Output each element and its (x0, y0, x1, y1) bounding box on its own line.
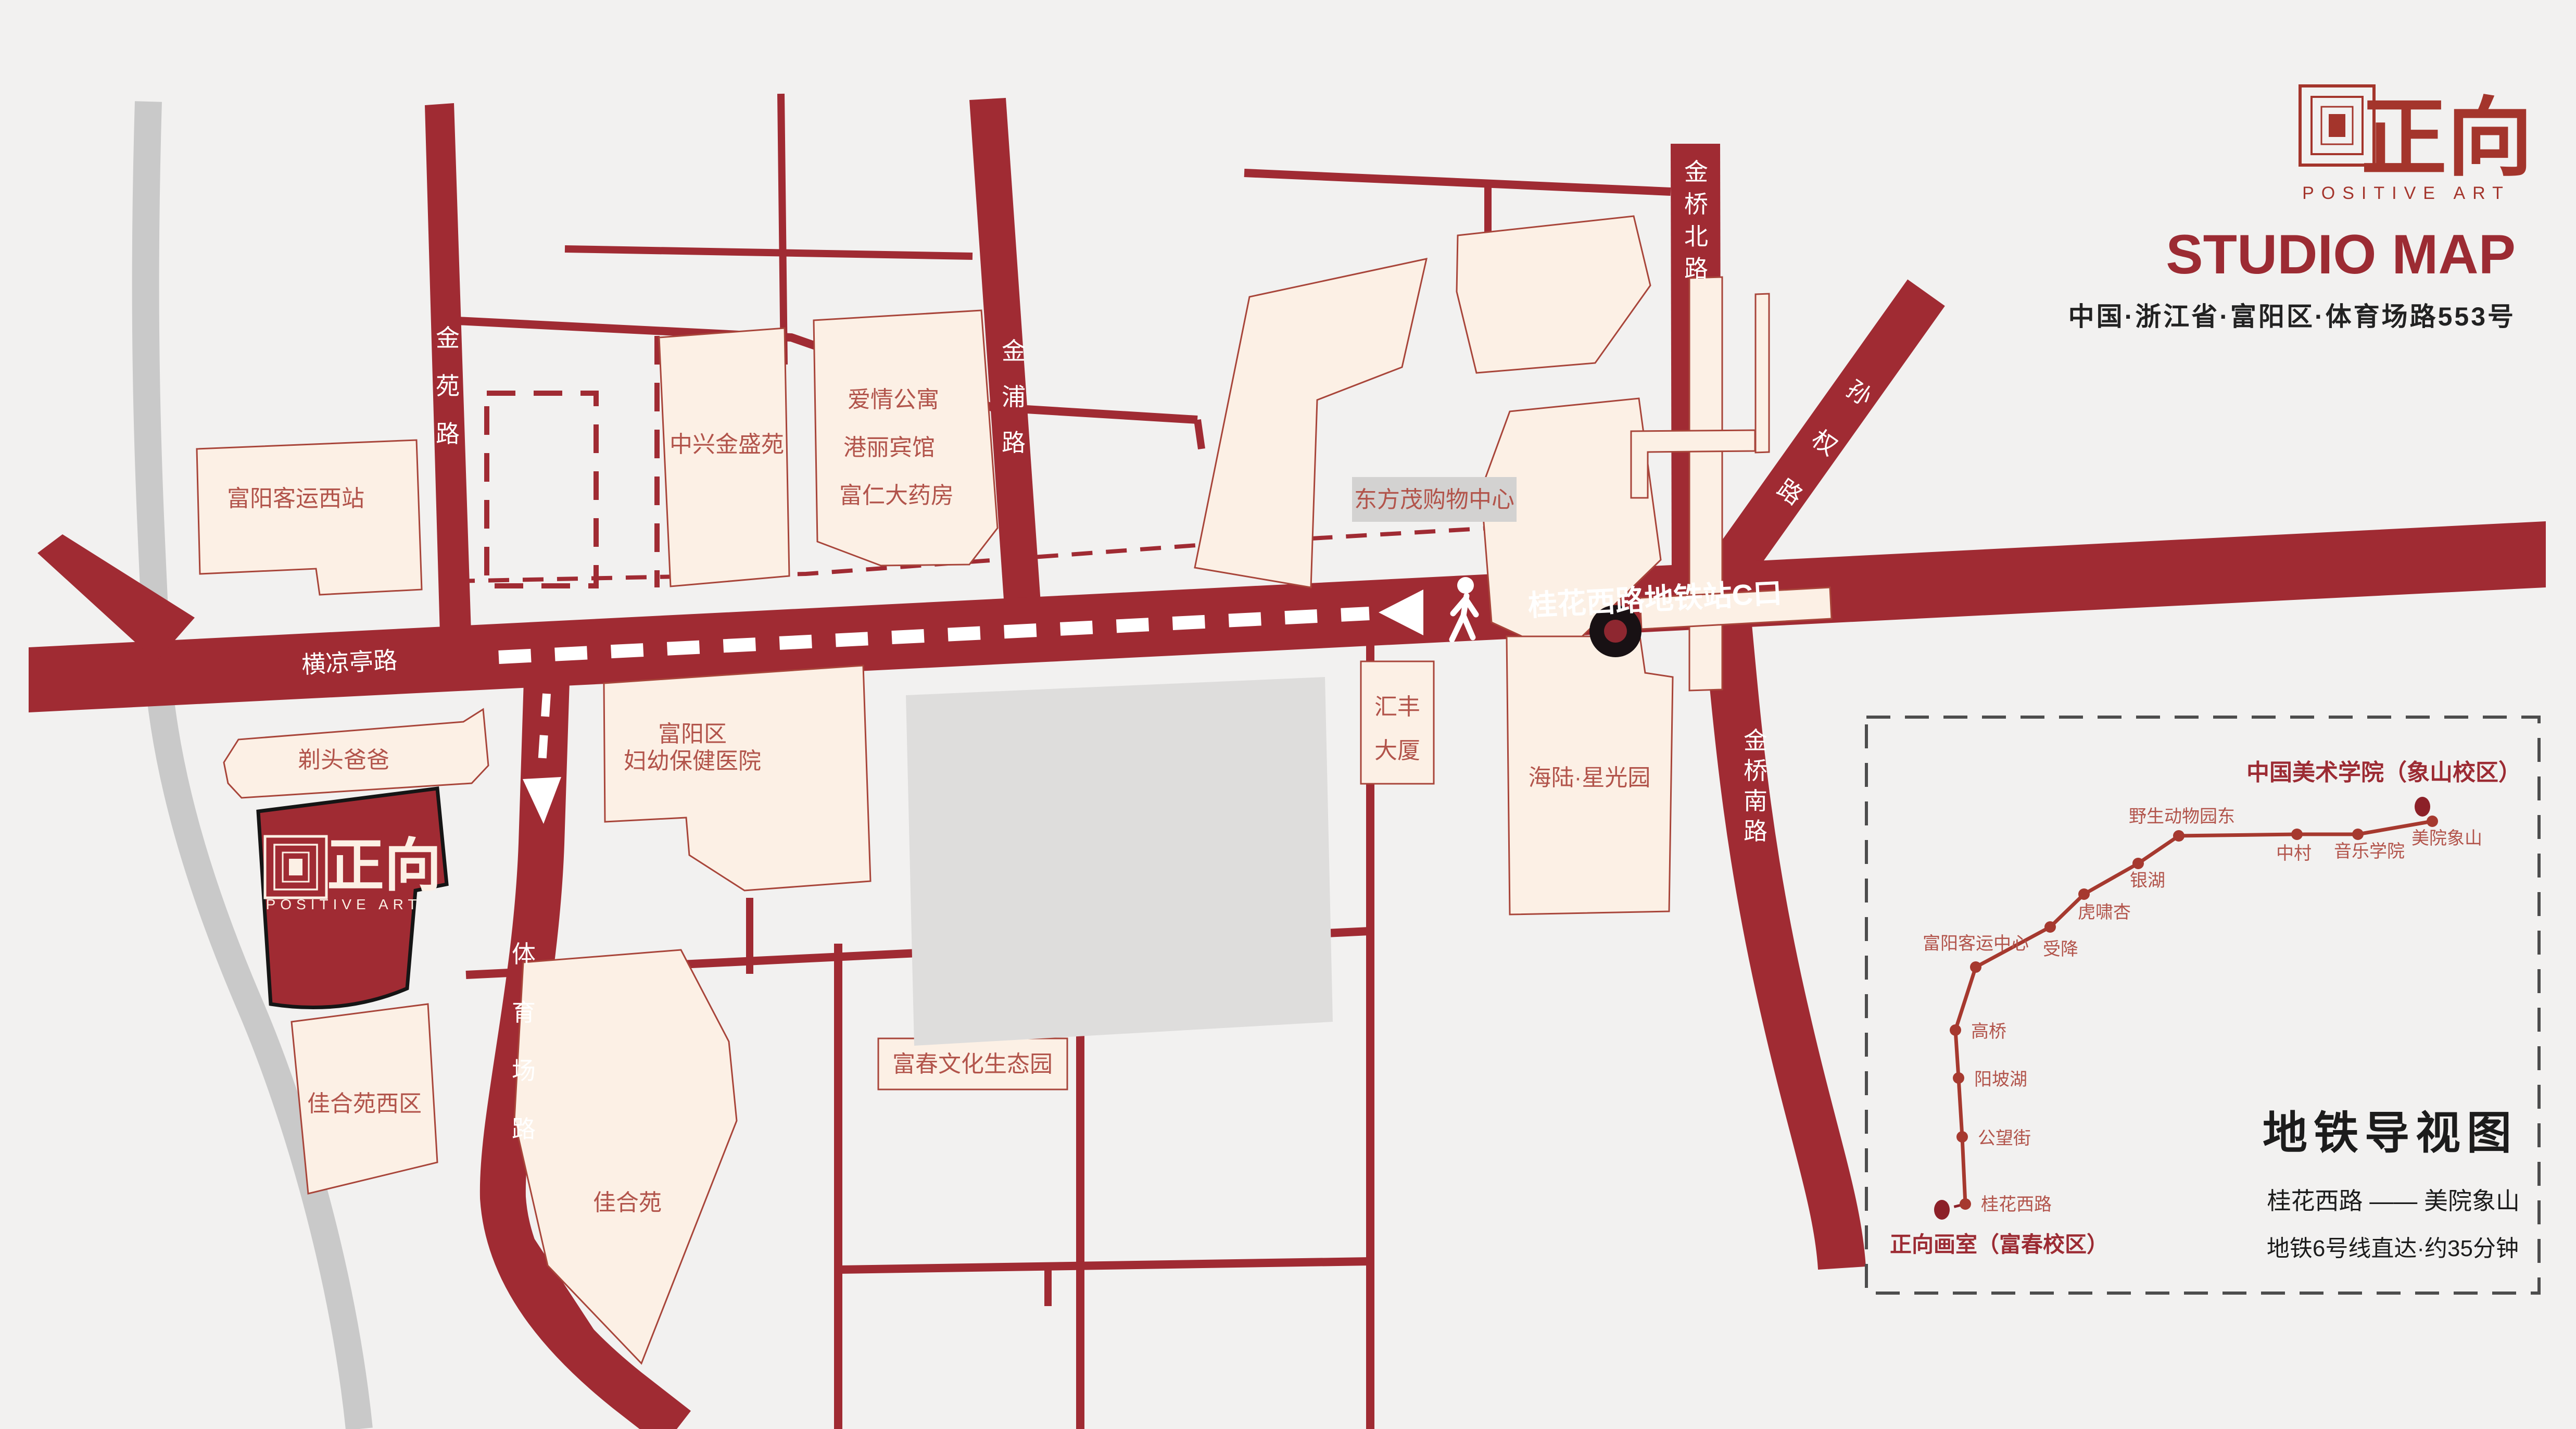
studio-brand-cn: 正向 (327, 834, 441, 898)
station-structure-bar-right (1756, 294, 1769, 453)
metro-station-dot (2078, 888, 2090, 900)
metro-station-label: 富阳客运中心 (1923, 934, 2029, 954)
label-furen: 富仁大药房 (839, 483, 954, 508)
thin-road-vertical-1 (781, 94, 784, 365)
metro-exit-marker-center (1604, 620, 1627, 643)
page-title: STUDIO MAP (2166, 223, 2516, 285)
label-hospital-1: 富阳区 (658, 721, 727, 747)
brand-cn: 正向 (2361, 90, 2533, 186)
metro-station-dot (1953, 1072, 1964, 1084)
thin-road-stub-1 (1197, 420, 1202, 449)
road-label-hengliangting: 横凉亭路 (301, 646, 398, 678)
label-jiaheyuan: 佳合苑 (593, 1190, 662, 1215)
label-hailu: 海陆·星光园 (1529, 765, 1651, 791)
metro-station-label: 银湖 (2130, 871, 2165, 891)
label-huifeng-1: 汇丰 (1374, 694, 1420, 720)
metro-station-dot (2291, 829, 2303, 840)
studio-map-poster: 正向 POSITIVE ART 富阳客运西站 中兴金盛苑 爱情公寓 港丽宾馆 富… (0, 0, 2576, 1429)
page-address: 中国·浙江省·富阳区·体育场路553号 (2068, 302, 2516, 331)
metro-terminal-dot (1934, 1200, 1950, 1220)
label-hospital-2: 妇幼保健医院 (624, 748, 761, 774)
label-gangli: 港丽宾馆 (843, 435, 935, 460)
label-huifeng-2: 大厦 (1374, 738, 1420, 763)
label-jiaheyuan-west: 佳合苑西区 (307, 1091, 422, 1117)
metro-station-label: 桂花西路 (1981, 1195, 2052, 1214)
studio-logo-icon (265, 836, 326, 898)
label-zhongxing: 中兴金盛苑 (670, 432, 784, 457)
building-huifeng (1361, 661, 1434, 784)
metro-station-label: 高桥 (1971, 1022, 2006, 1042)
metro-station-dot (2173, 830, 2184, 842)
metro-station-label: 美院象山 (2411, 829, 2482, 848)
metro-station-dot (1960, 1198, 1971, 1210)
metro-station-dot (1950, 1024, 1961, 1036)
station-structure-bar-main (1689, 277, 1722, 691)
metro-terminal-top-label: 中国美术学院（象山校区） (2246, 760, 2521, 785)
metro-station-label: 虎啸杏 (2078, 902, 2131, 922)
metro-duration-text: 地铁6号线直达·约35分钟 (2267, 1236, 2519, 1261)
metro-station-dot (2427, 816, 2438, 827)
studio-brand-en: POSITIVE ART (266, 896, 422, 912)
road-label-jinyuan: 金苑路 (436, 324, 460, 447)
metro-station-label: 受降 (2043, 939, 2078, 959)
label-titou: 剃头爸爸 (298, 747, 389, 773)
metro-panel-title: 地铁导视图 (2263, 1108, 2518, 1158)
label-aiqing: 爱情公寓 (848, 387, 939, 412)
building-zhongxing (659, 328, 789, 586)
metro-station-dot (2044, 921, 2056, 933)
metro-station-label: 公望街 (1978, 1129, 2031, 1148)
label-mall: 东方茂购物中心 (1354, 487, 1514, 512)
metro-route-text: 桂花西路 —— 美院象山 (2267, 1187, 2520, 1214)
metro-terminal-dot (2415, 797, 2430, 817)
metro-station-label: 阳坡湖 (1974, 1070, 2027, 1089)
label-fuchun-park: 富春文化生态园 (892, 1051, 1053, 1077)
metro-terminal-bottom-label: 正向画室（富春校区） (1890, 1232, 2108, 1257)
metro-station-dot (1956, 1131, 1968, 1143)
metro-station-label: 野生动物园东 (2129, 807, 2235, 826)
metro-station-dot (2352, 829, 2364, 840)
metro-station-label: 中村 (2276, 844, 2312, 863)
metro-station-label: 音乐学院 (2334, 842, 2405, 861)
brand-en: POSITIVE ART (2302, 183, 2510, 203)
road-label-jinpu: 金浦路 (1002, 337, 1026, 456)
label-west-bus-station: 富阳客运西站 (227, 486, 364, 511)
metro-station-dot (2132, 858, 2144, 869)
metro-station-dot (1970, 961, 1981, 973)
gray-block (906, 677, 1333, 1046)
